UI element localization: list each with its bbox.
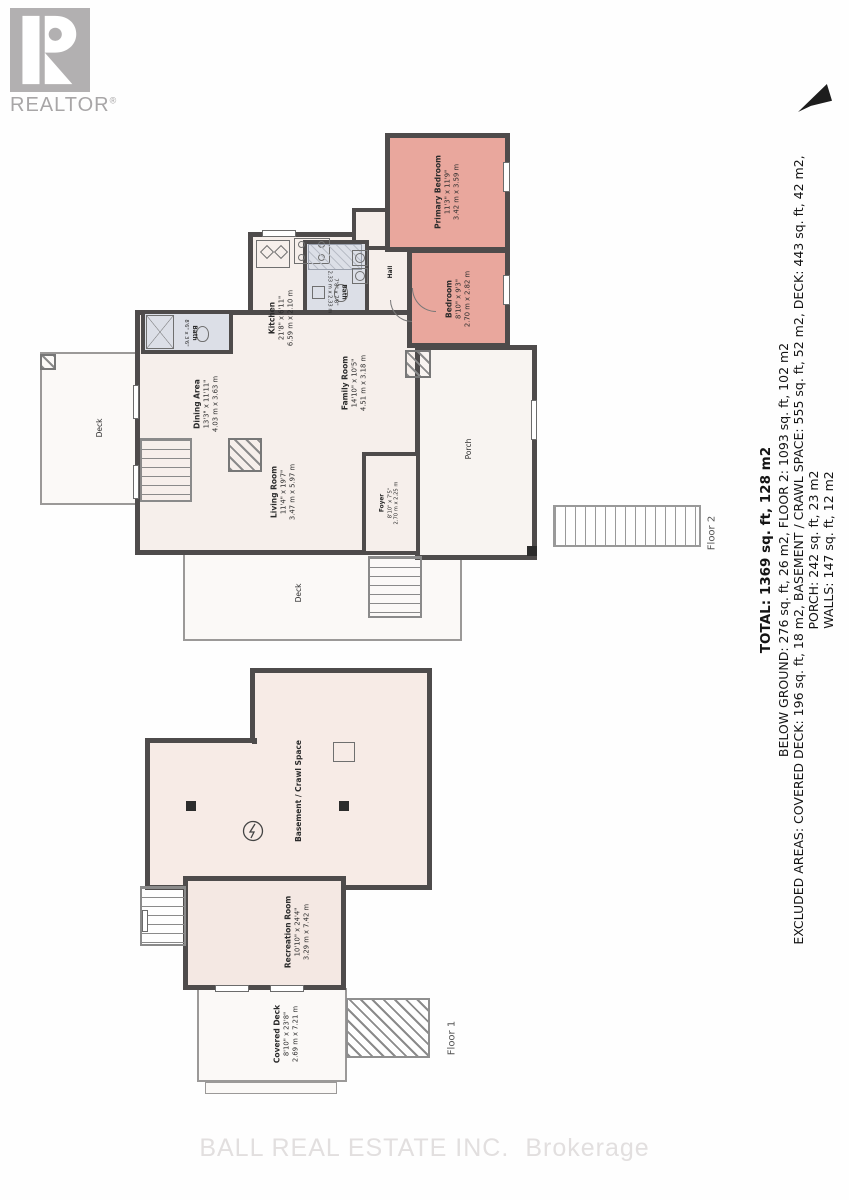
floor2-porch-steps-hatch xyxy=(405,350,431,378)
window xyxy=(503,162,510,192)
room-dim-m: 2.70 m x 2.82 m xyxy=(463,271,472,327)
summary-porch: PORCH: 242 sq. ft, 23 m2 xyxy=(806,145,821,955)
floor2-exterior-stairs xyxy=(553,505,701,547)
room-dim-ft: 21'8" x 6'11" xyxy=(277,290,286,346)
room-label-bath: Bath 7'8" x 7'8" 2.33 m x 2.33 m xyxy=(325,271,346,314)
window xyxy=(133,465,139,499)
room-dim-ft: 8'6" x 3'6" xyxy=(183,319,190,346)
room-name: Primary Bedroom xyxy=(433,155,443,229)
room-name: Family Room xyxy=(340,355,350,411)
room-dim-ft: 14'10" x 10'5" xyxy=(350,355,359,411)
room-label-hall: Hall xyxy=(388,266,396,279)
room-dim-m: 2.69 m x 7.21 m xyxy=(291,1005,300,1063)
brokerage-name: BALL REAL ESTATE INC. xyxy=(199,1134,509,1163)
floor1-basement-main xyxy=(250,668,432,890)
room-dim-ft: 8'10" x 9'3" xyxy=(454,271,463,327)
room-label-recreation: Recreation Room 10'10" x 24'4" 3.29 m x … xyxy=(283,896,310,968)
room-name: Basement / Crawl Space xyxy=(294,740,304,842)
room-dim-m: 4.03 m x 3.63 m xyxy=(211,376,220,432)
window xyxy=(133,385,139,419)
room-label-covered-deck: Covered Deck 8'10" x 23'8" 2.69 m x 7.21… xyxy=(272,1005,299,1063)
area-summary: TOTAL: 1369 sq. ft, 128 m2 BELOW GROUND:… xyxy=(758,145,849,955)
floor2-stairs xyxy=(140,438,192,502)
electrical-panel-icon xyxy=(242,820,264,842)
room-name: Covered Deck xyxy=(272,1005,282,1063)
room-dim-ft: 10'10" x 24'4" xyxy=(293,896,302,968)
floor2-deck-corner-detail xyxy=(40,354,56,370)
room-name: Porch xyxy=(464,439,474,460)
room-label-foyer: Foyer 8'10" x 7'5" 2.70 m x 2.25 m xyxy=(379,482,400,525)
vanity-icon xyxy=(146,315,174,349)
realtor-r-icon xyxy=(10,8,90,92)
room-dim-ft: 7'8" x 7'8" xyxy=(332,271,339,314)
room-dim-m: 3.47 m x 5.97 m xyxy=(288,464,297,520)
room-dim-m: 2.33 m x 2.33 m xyxy=(325,271,332,314)
room-label-living: Living Room 11'4" x 19'7" 3.47 m x 5.97 … xyxy=(269,464,296,520)
stove-burner-icon xyxy=(298,241,305,248)
room-label-porch: Porch xyxy=(464,439,474,460)
room-label-basement: Basement / Crawl Space xyxy=(294,740,304,842)
floor-plan-page: REALTOR® Primary Bedroom xyxy=(0,0,849,1200)
summary-total: TOTAL: 1369 sq. ft, 128 m2 xyxy=(758,145,774,955)
floor2-chimney-hatch xyxy=(228,438,262,472)
room-dim-m: 2.70 m x 2.25 m xyxy=(394,482,401,525)
room-name: Deck xyxy=(294,584,304,603)
room-dim-m: 6.59 m x 2.10 m xyxy=(286,290,295,346)
window xyxy=(262,230,296,237)
window xyxy=(142,910,148,932)
room-dim-ft: 8'10" x 23'8" xyxy=(282,1005,291,1063)
brokerage-word: Brokerage xyxy=(525,1134,649,1163)
realtor-logo: REALTOR® xyxy=(10,8,120,117)
support-post xyxy=(186,801,196,811)
room-dim-m: 3.42 m x 3.59 m xyxy=(452,155,461,229)
room-dim-ft: 13'3" x 11'11" xyxy=(202,376,211,432)
floor1-tag: Floor 1 xyxy=(447,1021,458,1055)
room-name: Bath xyxy=(190,319,198,346)
room-label-dining: Dining Area 13'3" x 11'11" 4.03 m x 3.63… xyxy=(192,376,219,432)
bath-sink-icon xyxy=(312,286,325,299)
window xyxy=(531,400,537,440)
wall-join-patch xyxy=(251,744,260,884)
room-name: Foyer xyxy=(379,482,387,525)
room-name: Living Room xyxy=(269,464,279,520)
room-dim-ft: 11'3" x 11'9" xyxy=(443,155,452,229)
dryer-drum-icon xyxy=(355,271,365,281)
floor1-deck-lip xyxy=(205,1082,337,1094)
floor2-deck-stairs xyxy=(368,556,422,618)
stove-burner-icon xyxy=(298,254,305,261)
room-label-deck-bottom: Deck xyxy=(294,584,304,603)
window xyxy=(270,985,304,992)
floor1-recreation-room xyxy=(183,876,346,990)
room-dim-ft: 8'10" x 7'5" xyxy=(387,482,394,525)
room-label-deck-left: Deck xyxy=(95,419,105,438)
window xyxy=(215,985,249,992)
porch-post xyxy=(527,546,537,556)
brokerage-watermark: BALL REAL ESTATE INC. Brokerage xyxy=(0,1134,849,1163)
room-name: Dining Area xyxy=(192,376,202,432)
room-name: Bedroom xyxy=(444,271,454,327)
summary-below-ground: BELOW GROUND: 276 sq. ft, 26 m2, FLOOR 2… xyxy=(776,145,791,955)
room-label-bedroom: Bedroom 8'10" x 9'3" 2.70 m x 2.82 m xyxy=(444,271,471,327)
realtor-wordmark: REALTOR® xyxy=(10,94,120,117)
floor1-exterior-stairs-hatch xyxy=(346,998,430,1058)
toilet-icon xyxy=(196,326,209,342)
room-name: Hall xyxy=(388,266,396,279)
crawl-access-icon xyxy=(333,742,355,762)
room-label-bath2: Bath 8'6" x 3'6" xyxy=(183,319,197,346)
support-post xyxy=(339,801,349,811)
room-name: Deck xyxy=(95,419,105,438)
floor1-basement-left xyxy=(145,738,257,890)
floor2-porch xyxy=(415,345,537,560)
room-dim-m: 4.51 m x 3.18 m xyxy=(359,355,368,411)
room-label-primary-bedroom: Primary Bedroom 11'3" x 11'9" 3.42 m x 3… xyxy=(433,155,460,229)
north-arrow-icon xyxy=(798,84,832,112)
window xyxy=(503,275,510,305)
room-dim-ft: 11'4" x 19'7" xyxy=(279,464,288,520)
summary-walls: WALLS: 147 sq. ft, 12 m2 xyxy=(821,145,836,955)
room-name: Recreation Room xyxy=(283,896,293,968)
room-name: Kitchen xyxy=(267,290,277,346)
room-dim-m: 3.29 m x 7.42 m xyxy=(302,896,311,968)
floor2-deck-left xyxy=(40,352,137,505)
washer-drum-icon xyxy=(355,253,365,263)
summary-excluded-areas: EXCLUDED AREAS: COVERED DECK: 196 sq. ft… xyxy=(791,145,806,955)
room-label-kitchen: Kitchen 21'8" x 6'11" 6.59 m x 2.10 m xyxy=(267,290,294,346)
room-label-family: Family Room 14'10" x 10'5" 4.51 m x 3.18… xyxy=(340,355,367,411)
room-name: Bath xyxy=(339,271,347,314)
floor2-tag: Floor 2 xyxy=(707,516,718,550)
